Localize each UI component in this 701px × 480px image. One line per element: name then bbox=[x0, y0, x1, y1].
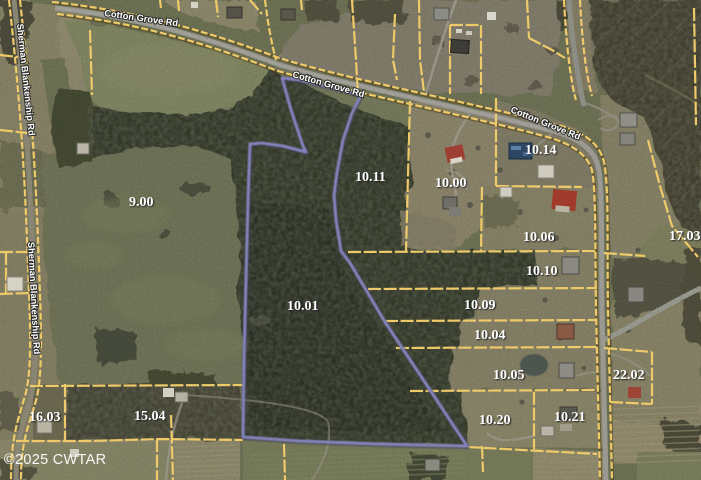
svg-text:10.11: 10.11 bbox=[355, 170, 386, 185]
svg-text:10.09: 10.09 bbox=[464, 298, 496, 313]
svg-text:©2025 CWTAR: ©2025 CWTAR bbox=[4, 452, 106, 468]
svg-text:10.01: 10.01 bbox=[287, 299, 319, 314]
svg-text:10.04: 10.04 bbox=[474, 328, 506, 343]
svg-text:16.03: 16.03 bbox=[29, 410, 61, 425]
svg-text:10.06: 10.06 bbox=[523, 230, 555, 245]
svg-text:10.05: 10.05 bbox=[493, 368, 525, 383]
svg-text:10.14: 10.14 bbox=[525, 143, 557, 158]
svg-text:17.03: 17.03 bbox=[669, 229, 701, 244]
svg-text:10.00: 10.00 bbox=[435, 176, 467, 191]
svg-text:9.00: 9.00 bbox=[129, 195, 154, 210]
svg-text:10.21: 10.21 bbox=[554, 410, 586, 425]
svg-text:10.20: 10.20 bbox=[479, 413, 511, 428]
svg-text:15.04: 15.04 bbox=[134, 409, 166, 424]
svg-text:10.10: 10.10 bbox=[526, 264, 558, 279]
svg-text:22.02: 22.02 bbox=[613, 368, 645, 383]
